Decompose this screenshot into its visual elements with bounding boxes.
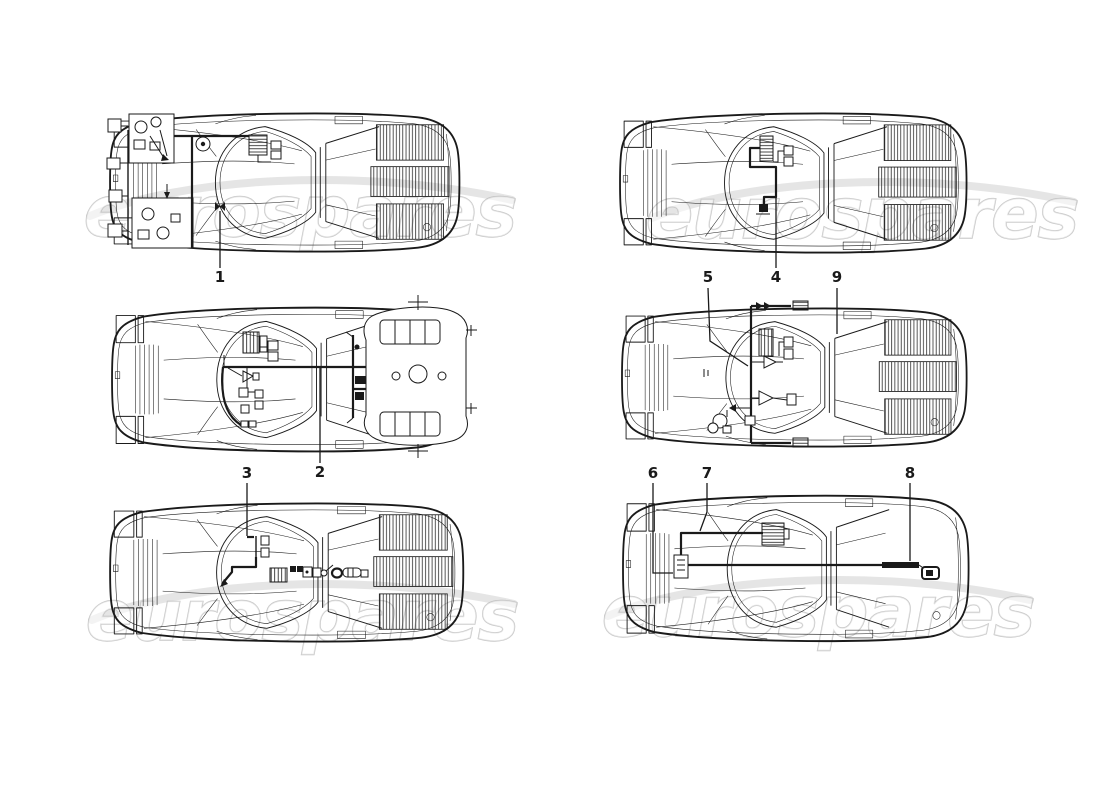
- engine-grilles: [371, 125, 449, 240]
- wiring-harness-engine: [222, 295, 477, 458]
- callout-number[interactable]: 8: [905, 464, 915, 482]
- radio-unit: [762, 523, 784, 545]
- fuse-panel: [760, 136, 773, 161]
- parts-diagram-page: eurospares eurospares eurospares eurospa…: [0, 0, 1100, 800]
- rear-connector-strip: [882, 562, 919, 568]
- engine-grilles: [374, 515, 453, 630]
- engine-grilles: [879, 125, 957, 240]
- callout-number[interactable]: 1: [215, 268, 225, 286]
- callout-8[interactable]: 8: [905, 464, 915, 561]
- fuse-panel: [759, 329, 773, 356]
- relay-box: [270, 568, 287, 582]
- callout-number[interactable]: 6: [648, 464, 658, 482]
- leader-line: [653, 483, 673, 573]
- watermark-text: eurospares: [646, 173, 1079, 255]
- callout-7[interactable]: 7: [700, 464, 712, 531]
- car-diagram-middle-left: [112, 295, 477, 458]
- connector-box: [674, 555, 688, 578]
- callout-number[interactable]: 7: [702, 464, 712, 482]
- engine-drawing: [364, 295, 477, 458]
- engine-grilles: [879, 320, 956, 435]
- callout-number[interactable]: 9: [832, 268, 842, 286]
- callout-number[interactable]: 3: [242, 464, 252, 482]
- leader-line: [708, 288, 748, 366]
- diagram-canvas: eurospares eurospares eurospares eurospa…: [0, 0, 1100, 800]
- callout-number[interactable]: 4: [771, 268, 781, 286]
- fuse-panel: [243, 332, 259, 353]
- callout-9[interactable]: 9: [832, 268, 842, 334]
- wiring-harness-services: [704, 301, 808, 447]
- watermark-text: eurospares: [86, 575, 519, 657]
- callout-number[interactable]: 2: [315, 463, 325, 481]
- car-diagram-middle-right: [622, 301, 967, 447]
- leader-line: [700, 483, 707, 531]
- fuse-panel: [249, 135, 267, 155]
- callout-number[interactable]: 5: [703, 268, 713, 286]
